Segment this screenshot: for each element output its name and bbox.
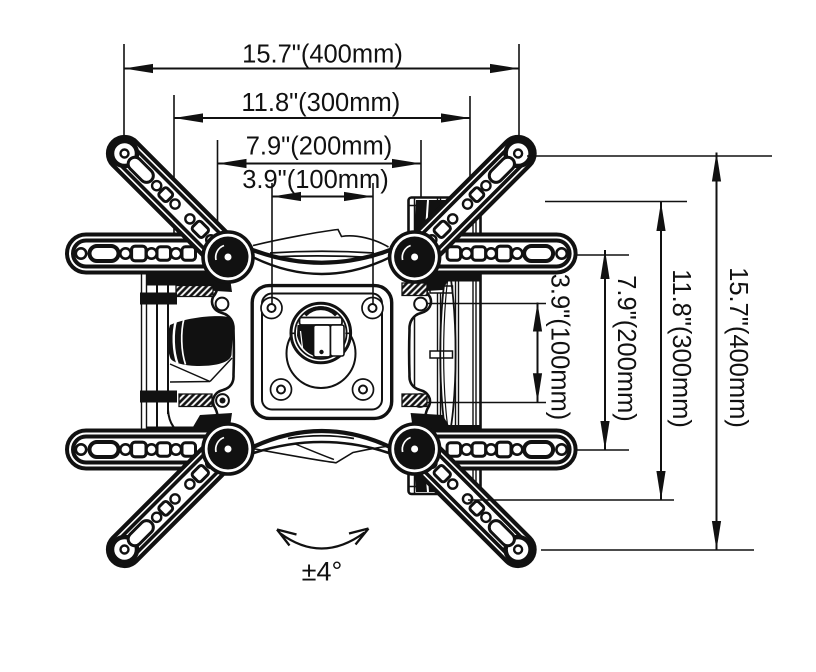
svg-text:15.7"(400mm): 15.7"(400mm) (242, 41, 403, 69)
svg-text:11.8"(300mm): 11.8"(300mm) (241, 89, 400, 117)
svg-text:7.9"(200mm): 7.9"(200mm) (246, 133, 393, 161)
svg-text:15.7"(400mm): 15.7"(400mm) (724, 267, 752, 428)
svg-text:11.8"(300mm): 11.8"(300mm) (667, 269, 695, 428)
svg-text:3.9"(100mm): 3.9"(100mm) (242, 166, 389, 194)
svg-text:7.9"(200mm): 7.9"(200mm) (612, 275, 640, 422)
svg-text:±4°: ±4° (302, 557, 343, 587)
svg-text:3.9"(100mm): 3.9"(100mm) (546, 274, 574, 421)
